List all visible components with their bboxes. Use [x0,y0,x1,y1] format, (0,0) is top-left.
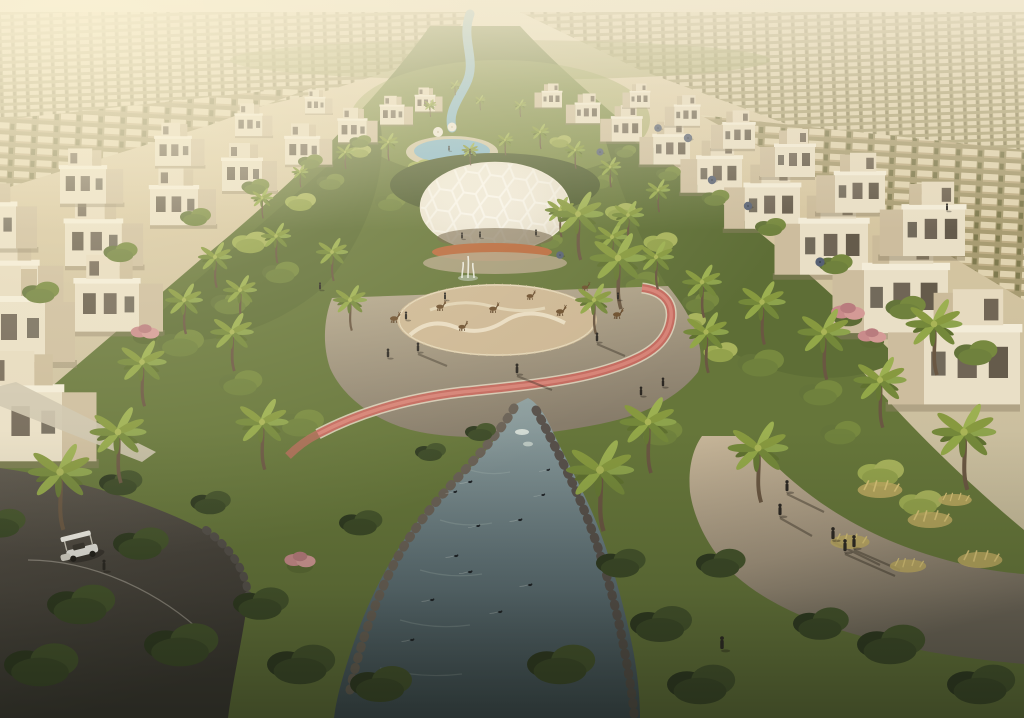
sun-glow [0,0,1024,718]
aerial-community-render [0,0,1024,718]
render-canvas [0,0,1024,718]
